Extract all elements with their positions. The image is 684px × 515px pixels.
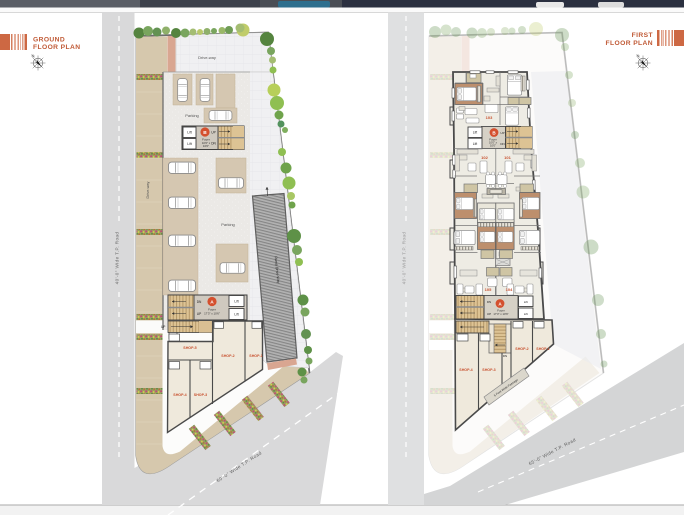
svg-text:103: 103 bbox=[486, 115, 493, 120]
svg-text:17'3" x 10'6": 17'3" x 10'6" bbox=[493, 312, 508, 316]
svg-text:105: 105 bbox=[485, 287, 492, 292]
svg-text:17'3" x 10'6": 17'3" x 10'6" bbox=[204, 312, 220, 316]
svg-text:40'-0" Wide T.P. Road: 40'-0" Wide T.P. Road bbox=[402, 232, 407, 285]
svg-text:40'-0" Wide T.P. Road: 40'-0" Wide T.P. Road bbox=[115, 232, 120, 285]
svg-text:Lift: Lift bbox=[187, 142, 192, 146]
svg-text:FLOOR PLAN: FLOOR PLAN bbox=[606, 40, 653, 47]
svg-text:UP: UP bbox=[161, 325, 165, 329]
svg-text:104: 104 bbox=[506, 287, 513, 292]
svg-text:102: 102 bbox=[481, 155, 488, 160]
svg-text:SHOP-1: SHOP-1 bbox=[249, 354, 262, 358]
svg-text:B: B bbox=[203, 130, 207, 136]
svg-text:10'0": 10'0" bbox=[203, 144, 209, 148]
svg-text:Lift: Lift bbox=[473, 142, 477, 146]
svg-text:SHOP-1: SHOP-1 bbox=[536, 347, 549, 351]
svg-text:FIRST: FIRST bbox=[632, 32, 654, 39]
svg-text:UP: UP bbox=[211, 131, 215, 135]
svg-text:DN: DN bbox=[487, 300, 491, 304]
svg-text:Parking: Parking bbox=[185, 113, 199, 118]
svg-text:101: 101 bbox=[504, 155, 511, 160]
svg-text:DN: DN bbox=[503, 354, 507, 358]
svg-text:Lift: Lift bbox=[473, 131, 477, 135]
svg-text:SHOP-3: SHOP-3 bbox=[482, 368, 495, 372]
svg-text:SHOP-2: SHOP-2 bbox=[221, 354, 234, 358]
svg-text:DN: DN bbox=[500, 142, 504, 146]
svg-text:Lift: Lift bbox=[187, 131, 192, 135]
svg-text:UP: UP bbox=[500, 131, 504, 135]
svg-text:FLOOR PLAN: FLOOR PLAN bbox=[33, 44, 80, 51]
svg-text:Parking: Parking bbox=[221, 222, 235, 227]
svg-text:A: A bbox=[210, 299, 214, 305]
svg-text:UP: UP bbox=[487, 312, 491, 316]
svg-text:Lift: Lift bbox=[524, 300, 528, 304]
svg-text:Lift: Lift bbox=[234, 313, 238, 317]
svg-text:Lift: Lift bbox=[524, 312, 528, 316]
svg-text:10'0": 10'0" bbox=[490, 143, 496, 147]
svg-text:GROUND: GROUND bbox=[33, 37, 65, 44]
svg-text:Drive-way: Drive-way bbox=[146, 181, 150, 198]
svg-text:Lift: Lift bbox=[234, 300, 238, 304]
svg-text:SHOP-4: SHOP-4 bbox=[459, 368, 472, 372]
svg-text:DN: DN bbox=[197, 300, 202, 304]
svg-text:UP: UP bbox=[197, 312, 201, 316]
svg-text:SHOP-5: SHOP-5 bbox=[183, 346, 196, 350]
svg-text:DN: DN bbox=[211, 142, 216, 146]
svg-text:SHOP-2: SHOP-2 bbox=[515, 347, 528, 351]
svg-text:Drive-way: Drive-way bbox=[198, 55, 216, 60]
svg-text:SHOP-3: SHOP-3 bbox=[194, 393, 207, 397]
svg-text:SHOP-4: SHOP-4 bbox=[173, 393, 186, 397]
